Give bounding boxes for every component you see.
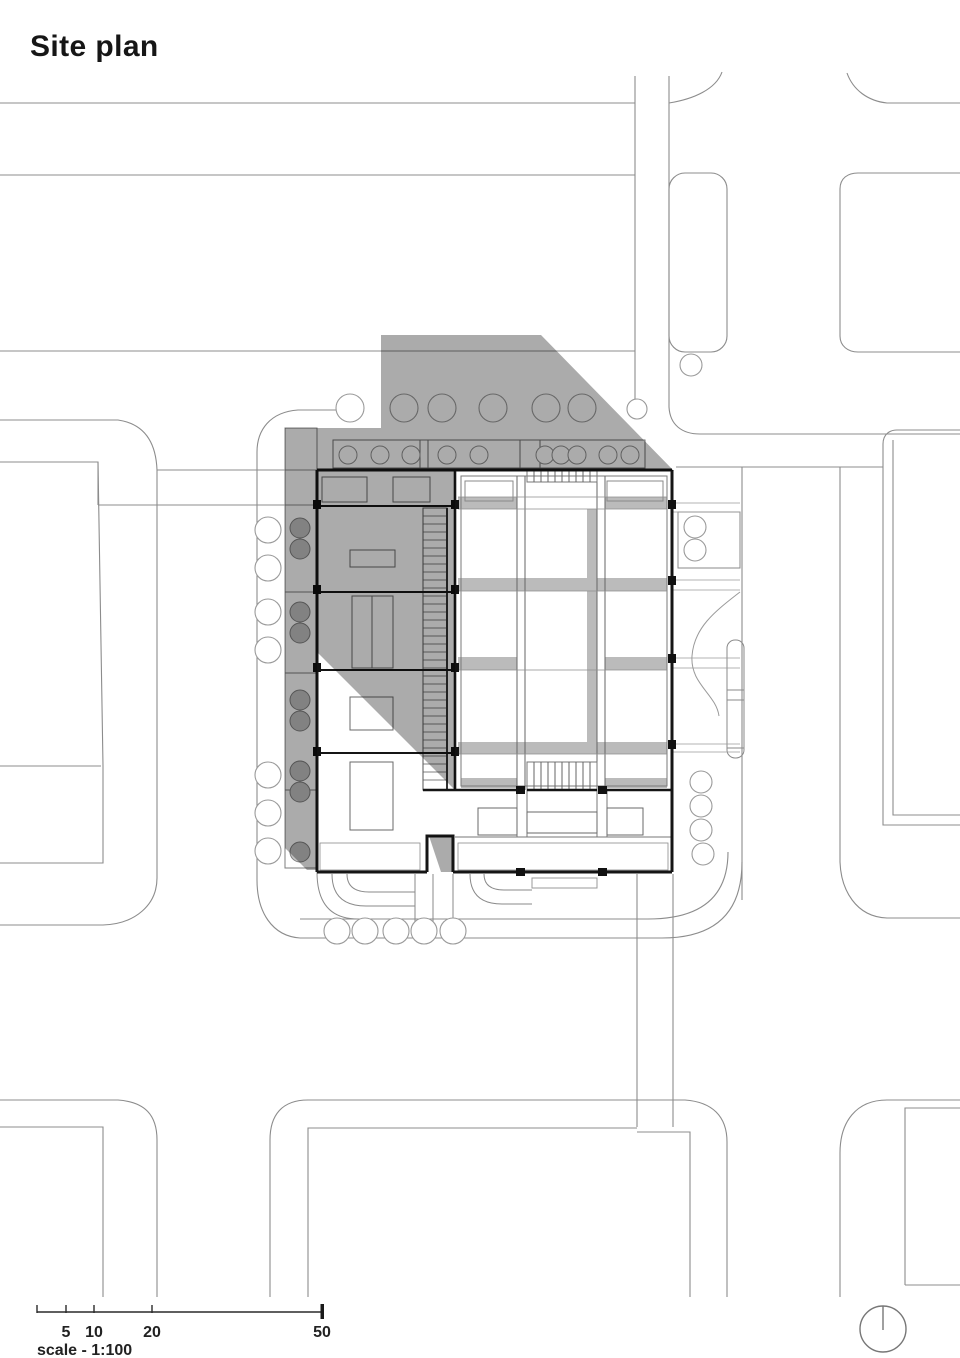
block-north-small <box>669 173 727 352</box>
scale-tick-10: 10 <box>85 1324 103 1341</box>
scale-tick-20: 20 <box>143 1324 161 1341</box>
courtyard-slab-bands <box>458 497 667 788</box>
scale-bar: 5 10 20 50 scale - 1:100 <box>37 1304 331 1358</box>
block-west-building <box>0 462 103 863</box>
block-east <box>883 430 960 825</box>
block-north-east <box>840 173 960 352</box>
scale-end-tick <box>321 1304 325 1319</box>
building-shadow-main <box>317 335 674 790</box>
block-southeast-building <box>905 1108 960 1285</box>
building-shadow-west-strip <box>285 428 317 870</box>
north-arrow-icon <box>860 1306 906 1352</box>
site-plan-drawing: Site plan 5 10 20 50 scale - 1:100 <box>0 0 960 1358</box>
scale-tick-50: 50 <box>313 1324 331 1341</box>
atrium-shadow-strip <box>587 509 597 742</box>
site-plan-sheet: Site plan 5 10 20 50 scale - 1:100 <box>0 0 960 1358</box>
scale-label: scale - 1:100 <box>37 1342 132 1358</box>
entry-shadow-wedge <box>429 836 452 872</box>
page-title: Site plan <box>30 30 159 63</box>
street-network <box>0 72 960 1297</box>
scale-tick-5: 5 <box>62 1324 71 1341</box>
